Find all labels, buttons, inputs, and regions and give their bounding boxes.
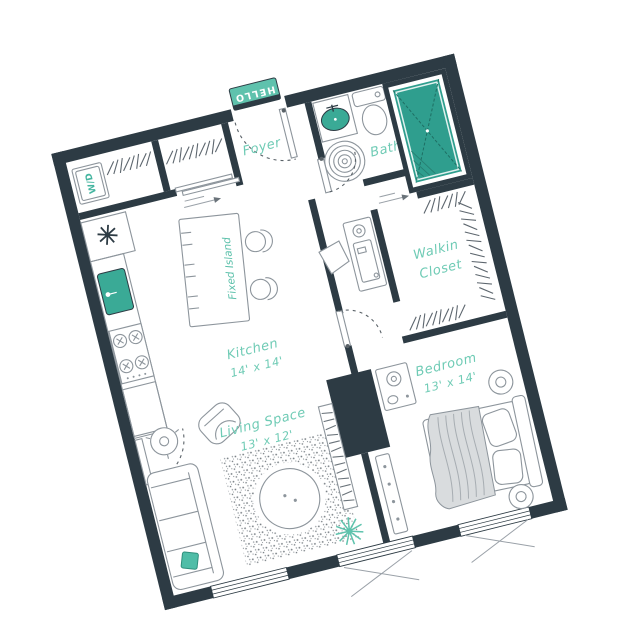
pillow-2 [492, 448, 523, 485]
closet-b [163, 137, 224, 165]
bar-stool-2 [249, 277, 278, 302]
media-stand [375, 362, 416, 410]
floor-plan-svg: HELLO Foyer W/D [0, 0, 634, 634]
walkin-entry-arrow [377, 190, 409, 206]
floor-plan-image: HELLO Foyer W/D [0, 0, 634, 634]
walkin-label-line2: Closet [418, 257, 464, 282]
closet-door-arrow [183, 192, 222, 210]
utility-closet [81, 212, 135, 262]
washer-dryer: W/D [72, 162, 110, 204]
closet-a: W/D [72, 150, 159, 205]
closet-a-rod-marks [104, 151, 154, 176]
throw-pillow [181, 552, 199, 570]
sliding-door [175, 173, 239, 197]
bedroom-door [336, 302, 383, 348]
side-table [144, 424, 185, 463]
closet-b-rod-marks [163, 137, 224, 165]
window-3 [458, 507, 532, 536]
bar-stool-1 [244, 229, 273, 254]
nightstand-1 [486, 368, 515, 397]
kitchen-island: Fixed Island [179, 210, 281, 327]
